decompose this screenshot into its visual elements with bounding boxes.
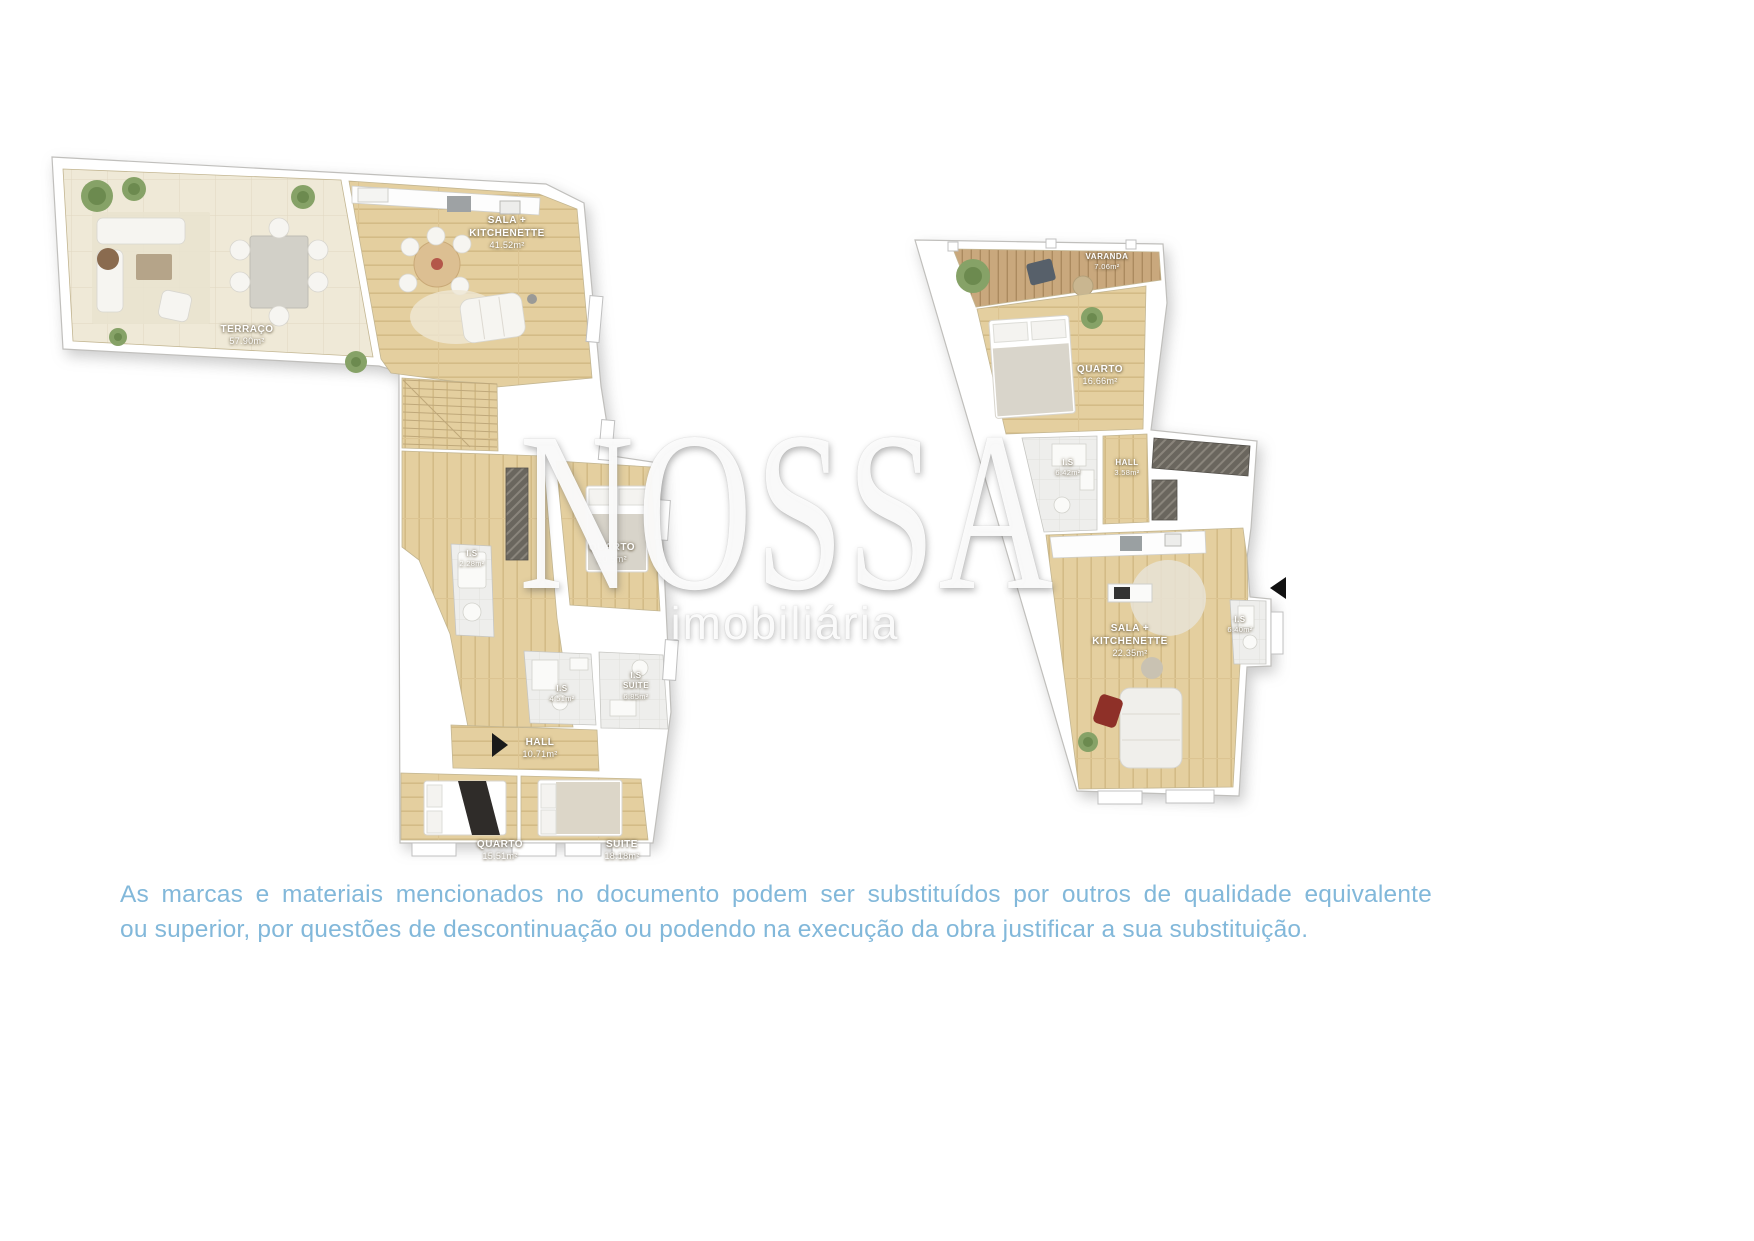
room-label-sala-kitchenette-lower: SALA + KITCHENETTE 22.35m² <box>1092 622 1168 660</box>
lower-floor-plan <box>915 239 1286 804</box>
stove <box>1120 536 1142 551</box>
sink <box>500 201 520 214</box>
disclaimer-text: As marcas e materiais mencionados no doc… <box>120 877 1432 947</box>
room-label-is-642: I.S 6.42m² <box>1055 458 1080 478</box>
room-label-quarto-105: QUARTO 10.5m² <box>589 541 635 566</box>
room-label-is-640: I.S 6.40m² <box>1227 615 1252 635</box>
bed <box>538 780 622 836</box>
room-label-hall: HALL 10.71m² <box>522 736 557 761</box>
sink <box>1165 534 1181 546</box>
room-label-is-suite: I.S SUITE 6.85m² <box>623 671 649 702</box>
stove <box>447 196 471 212</box>
plant <box>1083 737 1093 747</box>
room-label-is-228: I.S 2.28m² <box>459 549 484 569</box>
entrance-arrow-icon <box>1270 577 1286 599</box>
room-label-varanda: VARANDA 7.06m² <box>1086 252 1129 272</box>
room-label-quarto-lower: QUARTO 16.66m² <box>1077 363 1123 388</box>
room-label-is-451: I.S 4.51m² <box>549 684 574 704</box>
bed <box>424 781 506 835</box>
fridge <box>358 188 388 202</box>
coffee-table <box>1141 657 1163 679</box>
hob <box>1114 587 1130 599</box>
upper-floor-plan <box>52 157 678 856</box>
closet <box>506 468 528 560</box>
sofa <box>459 292 527 344</box>
floor-plan-canvas <box>0 0 1754 1241</box>
room-label-sala-kitchenette: SALA + KITCHENETTE 41.52m² <box>469 214 545 252</box>
sofa <box>1120 688 1182 768</box>
room-label-terraco: TERRAÇO 57.90m² <box>221 323 274 348</box>
room-label-hall-lower: HALL 3.58m² <box>1114 458 1139 478</box>
room-label-suite-1818: SUITE 18.18m² <box>604 838 639 863</box>
floorplan-page: { "background_color": "#ffffff", "waterm… <box>0 0 1754 1241</box>
wardrobe <box>1152 480 1177 520</box>
plant <box>1087 313 1097 323</box>
room-label-quarto-1551: QUARTO 15.51m² <box>477 838 523 863</box>
bed <box>989 315 1076 418</box>
room-hall-lower <box>1103 434 1149 524</box>
lamp <box>527 294 537 304</box>
